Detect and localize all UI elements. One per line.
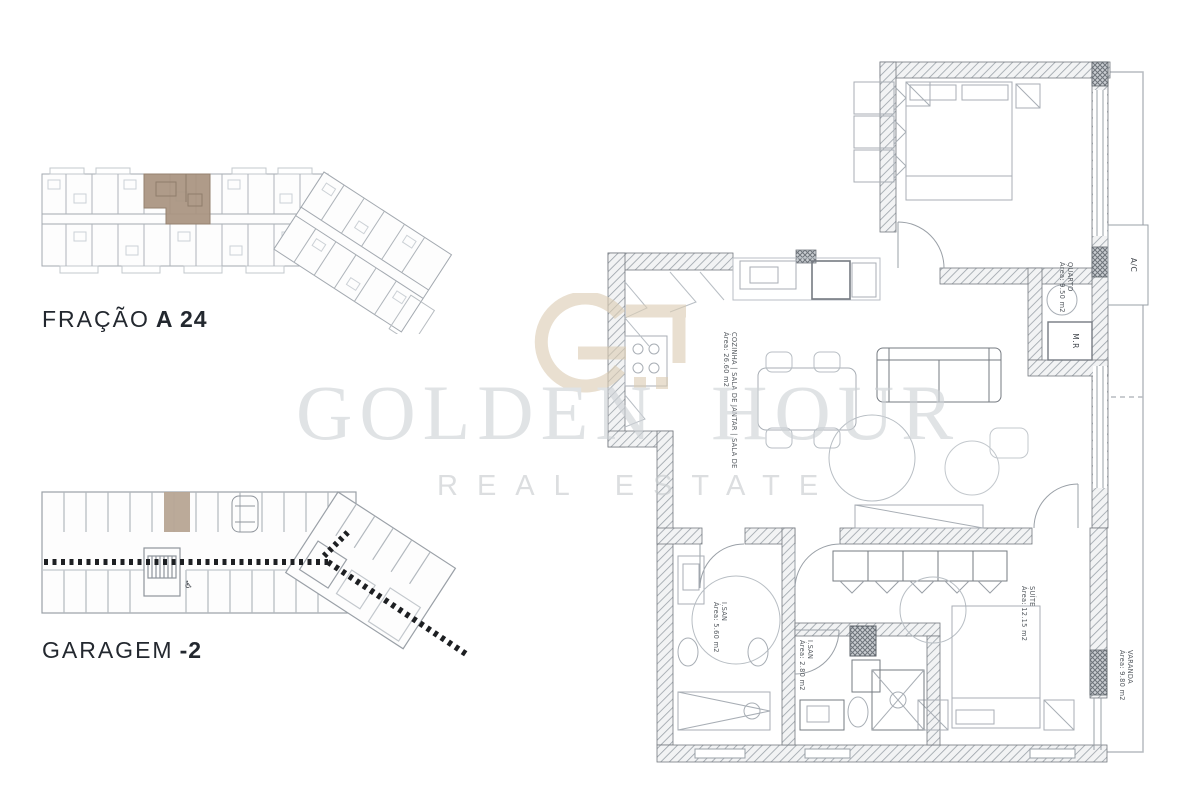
fraction-caption: FRAÇÃOA 24 (42, 306, 208, 333)
room-varanda-area: Área: 9.80 m2 (1118, 650, 1127, 701)
room-suite-area: Área: 12.15 m2 (1020, 586, 1029, 641)
mr-label: M.R (1071, 333, 1080, 349)
floorplan-page: FRAÇÃOA 24 (0, 0, 1187, 803)
room-isan2-name: I.SAN (806, 640, 814, 659)
svg-text:I.SAN Área: 5.60 m2: I.SAN Área: 5.60 m2 (712, 602, 728, 653)
accessible-parking-icon: ♿ (184, 580, 193, 591)
highlighted-parking-stall (164, 492, 190, 532)
svg-text:COZINHA | SALA DE JANTAR | SAL: COZINHA | SALA DE JANTAR | SALA DE Área:… (722, 332, 738, 471)
apartment-plan: A/C M.R QUARTO Área: 9.50 m2 COZINHA | S… (600, 50, 1187, 776)
svg-text:QUARTO Área: 9.50 m2: QUARTO Área: 9.50 m2 (1058, 262, 1074, 313)
room-cozinha-name: COZINHA | SALA DE JANTAR | SALA DE (730, 332, 738, 469)
room-isan1-area: Área: 5.60 m2 (712, 602, 721, 653)
room-cozinha-area: Área: 26.60 m2 (722, 332, 731, 387)
ac-unit: A/C (1108, 225, 1148, 305)
svg-text:VARANDA Área: 9.80 m: VARANDA Área: 9.80 m2 (1118, 650, 1134, 701)
svg-text:I.SAN Área: 2.80 m2: I.SAN Área: 2.80 m2 (798, 640, 814, 691)
room-isan1-name: I.SAN (720, 602, 728, 621)
windows (695, 90, 1107, 758)
room-varanda-name: VARANDA (1126, 650, 1134, 684)
fraction-label: FRAÇÃO (42, 306, 150, 332)
ac-label: A/C (1129, 258, 1138, 272)
fraction-value: A 24 (156, 306, 208, 332)
garage-value: -2 (180, 637, 202, 663)
garage-label: GARAGEM (42, 637, 174, 663)
mr-unit: M.R (1048, 322, 1092, 360)
furniture (625, 82, 1077, 730)
room-quarto-area: Área: 9.50 m2 (1058, 262, 1067, 313)
room-suite-name: SUÍTE (1028, 586, 1037, 607)
garage-caption: GARAGEM-2 (42, 637, 202, 664)
walls (608, 62, 1110, 762)
room-isan2-area: Área: 2.80 m2 (798, 640, 807, 691)
svg-text:SUÍTE Área: 12.15 m2: SUÍTE Área: 12.15 m2 (1020, 586, 1037, 641)
room-quarto-name: QUARTO (1066, 262, 1074, 292)
